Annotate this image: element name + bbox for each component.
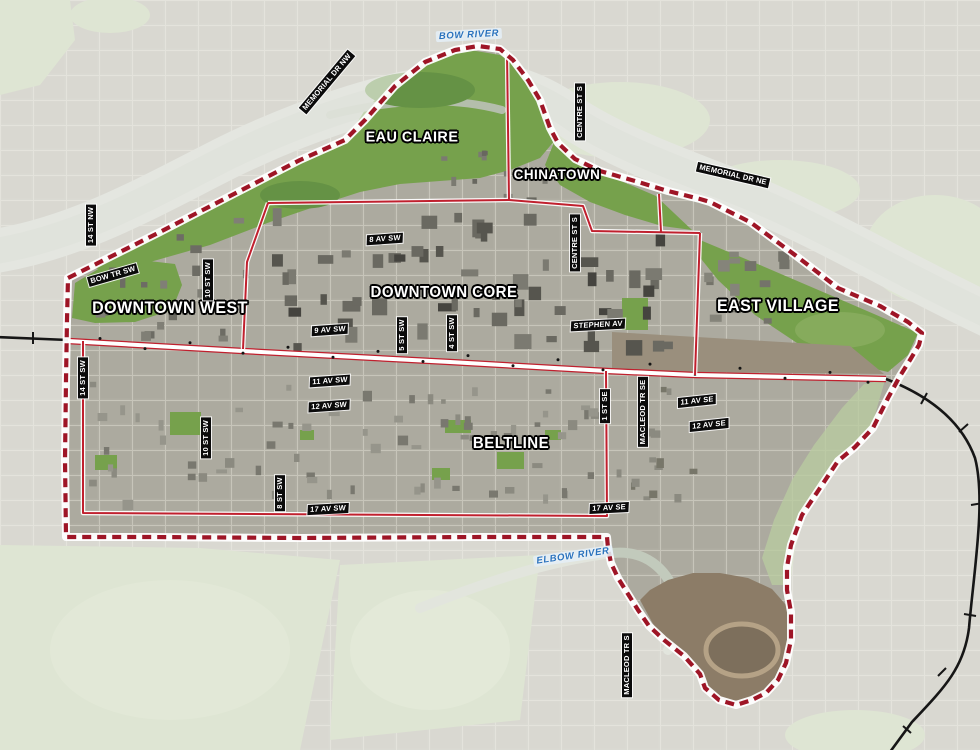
city-centre-districts-map: EAU CLAIRE CHINATOWN DOWNTOWN WEST DOWNT… bbox=[0, 0, 980, 750]
stampede-track bbox=[706, 624, 778, 676]
satellite-map-canvas bbox=[0, 0, 980, 750]
